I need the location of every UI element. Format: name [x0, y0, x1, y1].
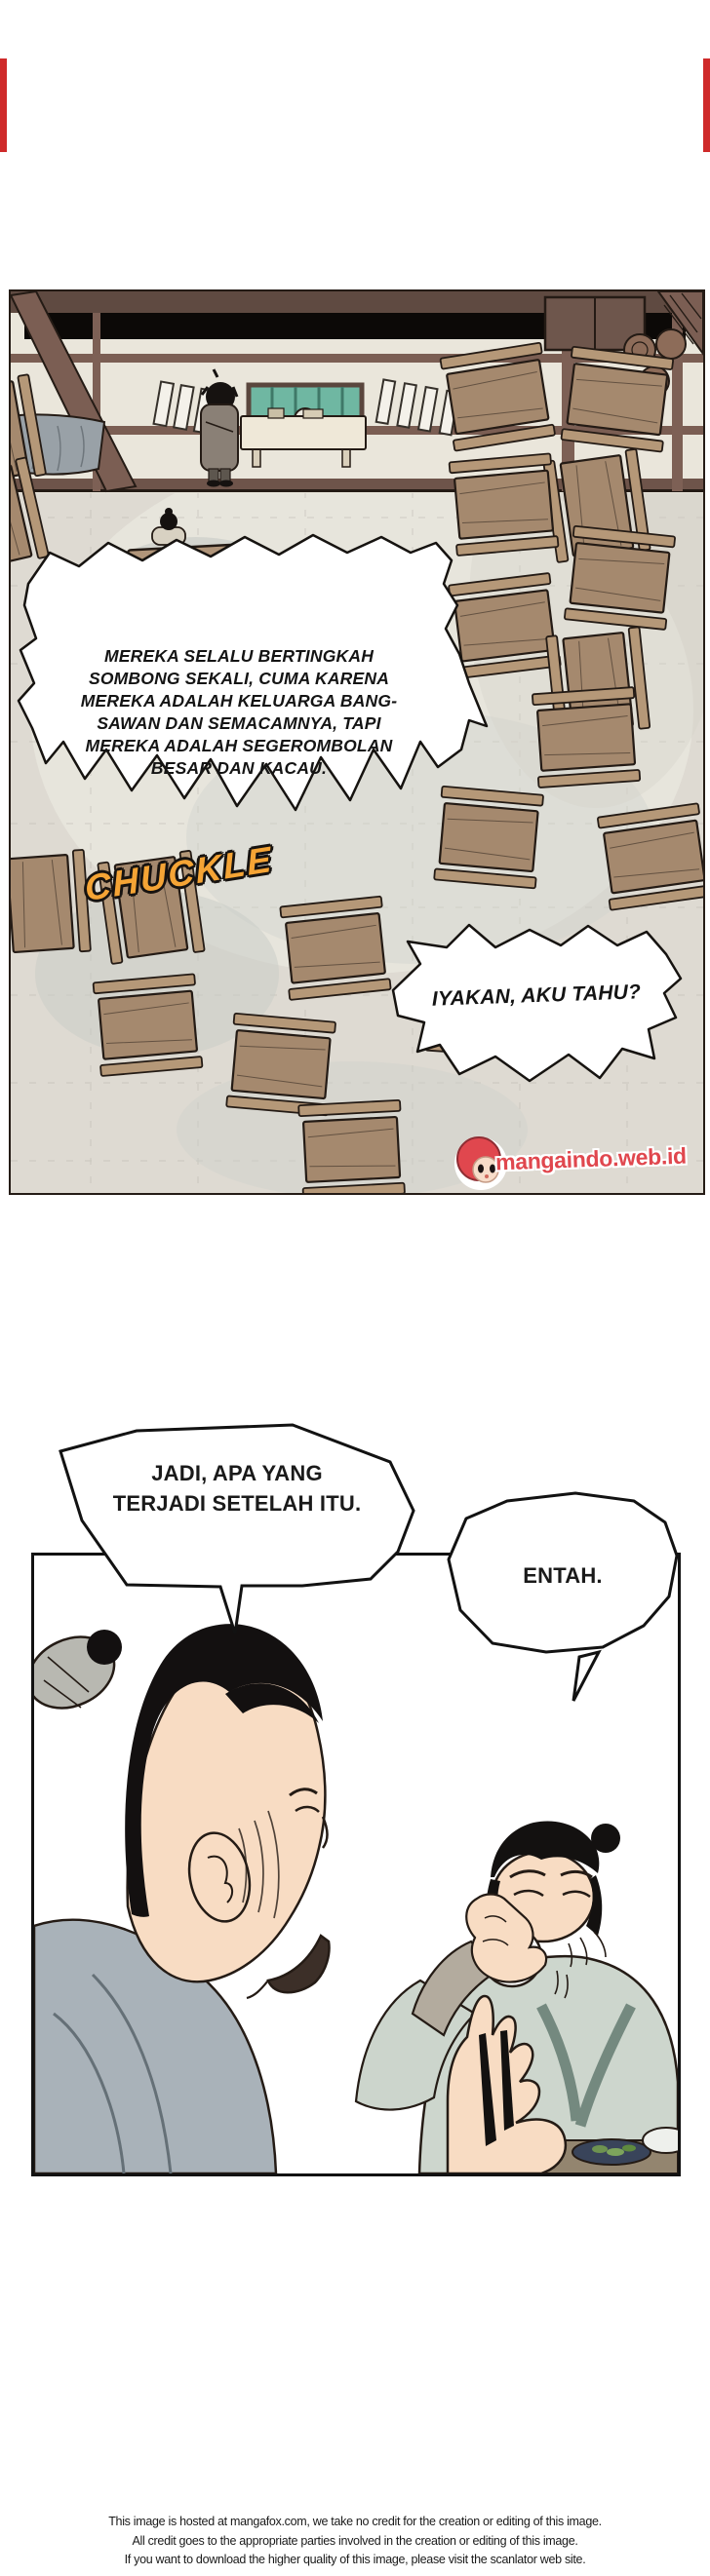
bubble-main-line: SAWAN DAN SEMACAMNYA, TAPI	[54, 712, 424, 735]
speech-bubble-answer-text: ENTAH.	[475, 1563, 651, 1589]
bubble-main-line: MEREKA ADALAH KELUARGA BANG-	[54, 690, 424, 712]
bubble-main-line: MEREKA ADALAH SEGEROMBOLAN	[54, 735, 424, 757]
left-edge-marker	[0, 58, 7, 152]
footer-line: All credit goes to the appropriate parti…	[0, 2532, 710, 2552]
bubble-question-line: JADI, APA YANG	[100, 1458, 374, 1488]
footer-line: This image is hosted at mangafox.com, we…	[0, 2513, 710, 2532]
bubble-question-line: TERJADI SETELAH ITU.	[100, 1488, 374, 1519]
footer-line: If you want to download the higher quali…	[0, 2551, 710, 2570]
bubble-main-line: BESAR DAN KACAU.	[54, 757, 424, 780]
manga-page: MEREKA SELALU BERTINGKAH SOMBONG SEKALI,…	[0, 0, 710, 2576]
right-edge-marker	[703, 58, 710, 152]
speech-bubble-question	[60, 1425, 414, 1634]
footer-disclaimer: This image is hosted at mangafox.com, we…	[0, 2513, 710, 2570]
speech-bubble-main-text: MEREKA SELALU BERTINGKAH SOMBONG SEKALI,…	[54, 645, 424, 780]
bubble-main-line: SOMBONG SEKALI, CUMA KARENA	[54, 668, 424, 690]
bubble-main-line: MEREKA SELALU BERTINGKAH	[54, 645, 424, 668]
speech-bubble-question-text: JADI, APA YANG TERJADI SETELAH ITU.	[100, 1458, 374, 1519]
